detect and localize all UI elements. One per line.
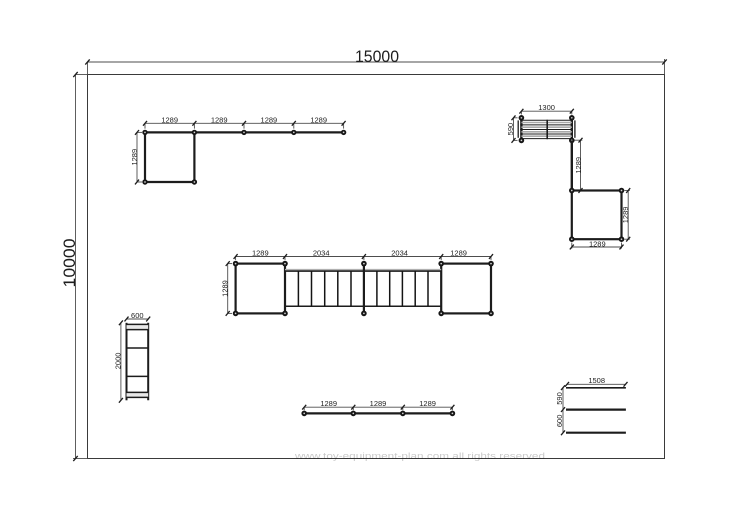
svg-text:1289: 1289 [220,280,229,297]
svg-text:590: 590 [555,392,564,405]
svg-text:1289: 1289 [419,399,436,408]
svg-text:1289: 1289 [621,207,630,224]
svg-text:590: 590 [506,123,515,136]
svg-text:1289: 1289 [450,249,467,258]
svg-text:1289: 1289 [589,239,606,248]
svg-text:1289: 1289 [130,149,139,166]
svg-text:2034: 2034 [313,249,330,258]
svg-text:600: 600 [131,311,144,320]
svg-text:1289: 1289 [252,249,269,258]
svg-text:1289: 1289 [211,115,228,124]
svg-text:www.toy-equipment-plan.com all: www.toy-equipment-plan.com all rights re… [294,451,545,461]
svg-text:15000: 15000 [355,47,399,66]
svg-text:1289: 1289 [261,115,278,124]
svg-text:600: 600 [555,415,564,428]
svg-text:1289: 1289 [310,115,327,124]
svg-text:1289: 1289 [161,115,178,124]
svg-text:2034: 2034 [391,249,408,258]
svg-text:1289: 1289 [320,399,337,408]
svg-text:10000: 10000 [60,239,79,288]
svg-text:2000: 2000 [114,353,123,370]
svg-text:1289: 1289 [370,399,387,408]
svg-text:1300: 1300 [538,103,555,112]
svg-text:1289: 1289 [574,157,583,174]
svg-text:1508: 1508 [588,376,605,385]
